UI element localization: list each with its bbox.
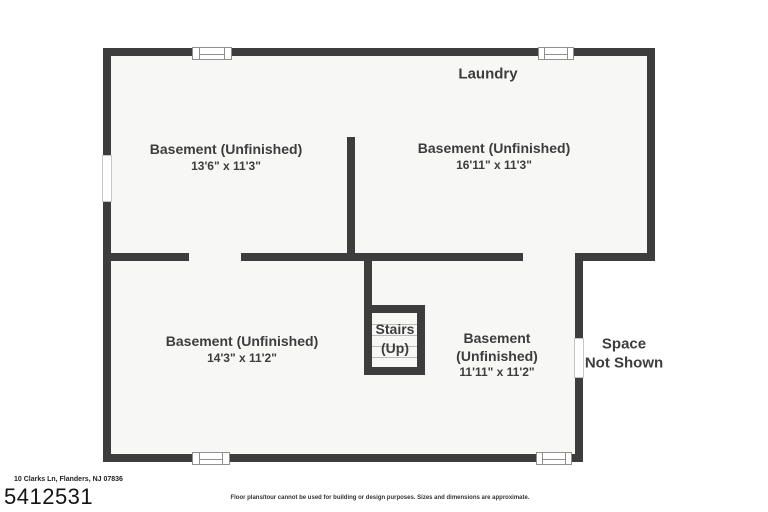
window [536,452,572,465]
room-label-basement-1: Basement (Unfinished) 13'6" x 11'3" [150,141,302,174]
floorplan: Laundry Basement (Unfinished) 13'6" x 11… [0,0,768,512]
stairs-label-line2: (Up) [376,339,415,358]
wall-right-upper [647,48,655,261]
window [192,452,230,465]
wall-top-rooms-divider [347,137,355,261]
window-glass-line [544,54,567,55]
window-glass-line [542,459,565,460]
window-glass-line [199,459,224,460]
room-label-basement-2: Basement (Unfinished) 16'11" x 11'3" [418,140,570,173]
room-label-basement-3: Basement (Unfinished) 14'3" x 11'2" [166,333,318,366]
room-label-laundry: Laundry [458,66,517,85]
window-glass-line [199,54,225,55]
window [538,47,574,60]
room-dimensions: 13'6" x 11'3" [150,158,302,173]
window [102,155,112,202]
wall-divider-left [111,253,189,261]
room-name: Basement (Unfinished) [150,141,302,159]
space-not-shown-line2: Not Shown [585,354,663,373]
wall-step [575,253,655,261]
stairs-label: Stairs (Up) [376,320,415,358]
wall-bottom [103,454,583,462]
disclaimer-text: Floor plans/tour cannot be used for buil… [230,495,529,501]
room-dimensions: 14'3" x 11'2" [166,350,318,365]
room-label-basement-4: Basement (Unfinished) 11'11" x 11'2" [444,330,550,380]
stairs-box-top-wall [364,305,425,313]
space-not-shown-label: Space Not Shown [585,335,663,373]
property-address: 10 Clarks Ln, Flanders, NJ 07836 [14,476,123,483]
room-name: Basement (Unfinished) [444,330,550,365]
stairs-box-bottom-wall [364,367,425,375]
space-not-shown-line1: Space [585,335,663,354]
wall-opening [574,338,584,378]
wall-stairs-left [364,261,372,375]
listing-id: 5412531 [4,484,93,510]
wall-divider-mid [241,253,523,261]
room-name: Basement (Unfinished) [418,140,570,158]
room-dimensions: 16'11" x 11'3" [418,157,570,172]
window [192,47,232,60]
room-name: Basement (Unfinished) [166,333,318,351]
room-dimensions: 11'11" x 11'2" [444,365,550,380]
stairs-box-right-wall [417,305,425,375]
stairs-label-line1: Stairs [376,320,415,339]
wall-left [103,48,111,462]
